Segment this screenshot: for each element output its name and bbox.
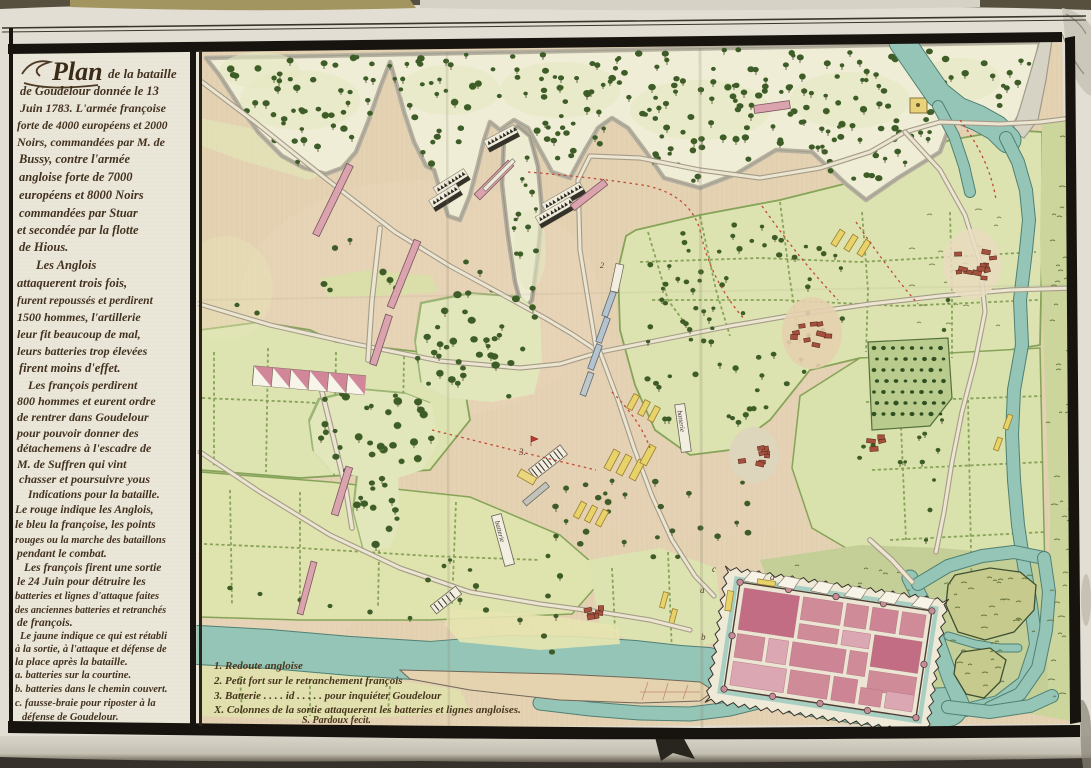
- svg-text:pendant le combat.: pendant le combat.: [16, 548, 107, 560]
- svg-text:Le rouge indique les Anglois,: Le rouge indique les Anglois,: [14, 504, 154, 516]
- svg-text:800 hommes et eurent ordre: 800 hommes et eurent ordre: [17, 394, 156, 408]
- svg-text:2. Petit fort sur le retranch: 2. Petit fort sur le retranchement franç…: [213, 675, 403, 687]
- svg-text:Plan: Plan: [51, 57, 103, 86]
- svg-text:de Hious.: de Hious.: [19, 240, 68, 254]
- svg-text:c. fausse-braie pour riposter: c. fausse-braie pour riposter à la: [15, 698, 156, 709]
- svg-text:de rentrer dans Goudelour: de rentrer dans Goudelour: [17, 410, 149, 424]
- svg-text:a: a: [770, 572, 775, 582]
- svg-text:S. Pardoux fecit.: S. Pardoux fecit.: [302, 715, 371, 726]
- svg-text:b. batteries dans le chemin co: b. batteries dans le chemin couvert.: [15, 684, 168, 695]
- svg-text:de Goudelour donnée le 13: de Goudelour donnée le 13: [20, 84, 159, 98]
- svg-text:de françois.: de françois.: [17, 617, 73, 629]
- svg-text:furent repoussés et perdirent: furent repoussés et perdirent: [17, 295, 154, 307]
- svg-text:à la sortie, à l'attaque et dé: à la sortie, à l'attaque et défense de: [15, 644, 167, 655]
- svg-text:Le jaune indique ce qui est ré: Le jaune indique ce qui est rétabli: [19, 631, 167, 642]
- svg-text:3. Batterie . . . . id . . .: 3. Batterie . . . . id . . . . . pour in…: [213, 690, 442, 702]
- svg-text:rouges ou la marche des batail: rouges ou la marche des bataillons: [15, 535, 166, 546]
- svg-text:Juin 1783. L'armée françoise: Juin 1783. L'armée françoise: [19, 101, 167, 115]
- svg-text:batteries et lignes d'attaque: batteries et lignes d'attaque faites: [15, 591, 159, 602]
- svg-text:Les Anglois: Les Anglois: [35, 258, 96, 272]
- svg-text:Bussy, contre l'armée: Bussy, contre l'armée: [18, 152, 130, 166]
- svg-text:pour pouvoir donner des: pour pouvoir donner des: [16, 426, 139, 440]
- svg-text:le 24 Juin pour détruire les: le 24 Juin pour détruire les: [17, 576, 146, 588]
- svg-text:des anciennes batteries et ret: des anciennes batteries et retranchés: [15, 605, 166, 616]
- svg-text:Indications pour la bataille.: Indications pour la bataille.: [27, 489, 160, 501]
- svg-text:1. Redoute angloise: 1. Redoute angloise: [214, 660, 303, 672]
- svg-text:détachemens à l'escadre de: détachemens à l'escadre de: [17, 441, 152, 455]
- svg-text:angloise forte de 7000: angloise forte de 7000: [19, 170, 133, 184]
- svg-text:commandées par Stuar: commandées par Stuar: [19, 206, 138, 220]
- svg-text:firent moins d'effet.: firent moins d'effet.: [19, 361, 121, 375]
- svg-text:la place après la bataille.: la place après la bataille.: [15, 656, 128, 668]
- svg-text:le bleu la françoise, les poin: le bleu la françoise, les points: [15, 519, 156, 531]
- svg-text:Les françois perdirent: Les françois perdirent: [27, 378, 138, 392]
- svg-text:2: 2: [600, 261, 604, 270]
- svg-text:Noirs, commandées par M. de: Noirs, commandées par M. de: [16, 135, 166, 149]
- svg-text:c: c: [712, 564, 716, 574]
- svg-text:chasser et poursuivre yous: chasser et poursuivre yous: [19, 472, 150, 486]
- svg-text:européens et 8000 Noirs: européens et 8000 Noirs: [19, 188, 144, 202]
- svg-text:M. de Suffren qui vint: M. de Suffren qui vint: [16, 457, 127, 471]
- svg-text:forte de 4000 européens et 200: forte de 4000 européens et 2000: [17, 120, 168, 132]
- svg-text:a. batteries sur la courtine.: a. batteries sur la courtine.: [15, 670, 131, 681]
- svg-text:leur fit beaucoup de mal,: leur fit beaucoup de mal,: [17, 327, 141, 341]
- svg-text:attaquerent trois fois,: attaquerent trois fois,: [17, 276, 127, 290]
- svg-text:défense de Goudelour.: défense de Goudelour.: [22, 712, 119, 723]
- svg-text:et secondée par la flotte: et secondée par la flotte: [17, 223, 139, 237]
- svg-text:de la bataille: de la bataille: [108, 66, 177, 81]
- svg-text:Les françois firent une sortie: Les françois firent une sortie: [23, 562, 161, 574]
- svg-text:leurs batteries trop élevées: leurs batteries trop élevées: [17, 344, 148, 358]
- svg-text:1500 hommes, l'artillerie: 1500 hommes, l'artillerie: [17, 310, 141, 324]
